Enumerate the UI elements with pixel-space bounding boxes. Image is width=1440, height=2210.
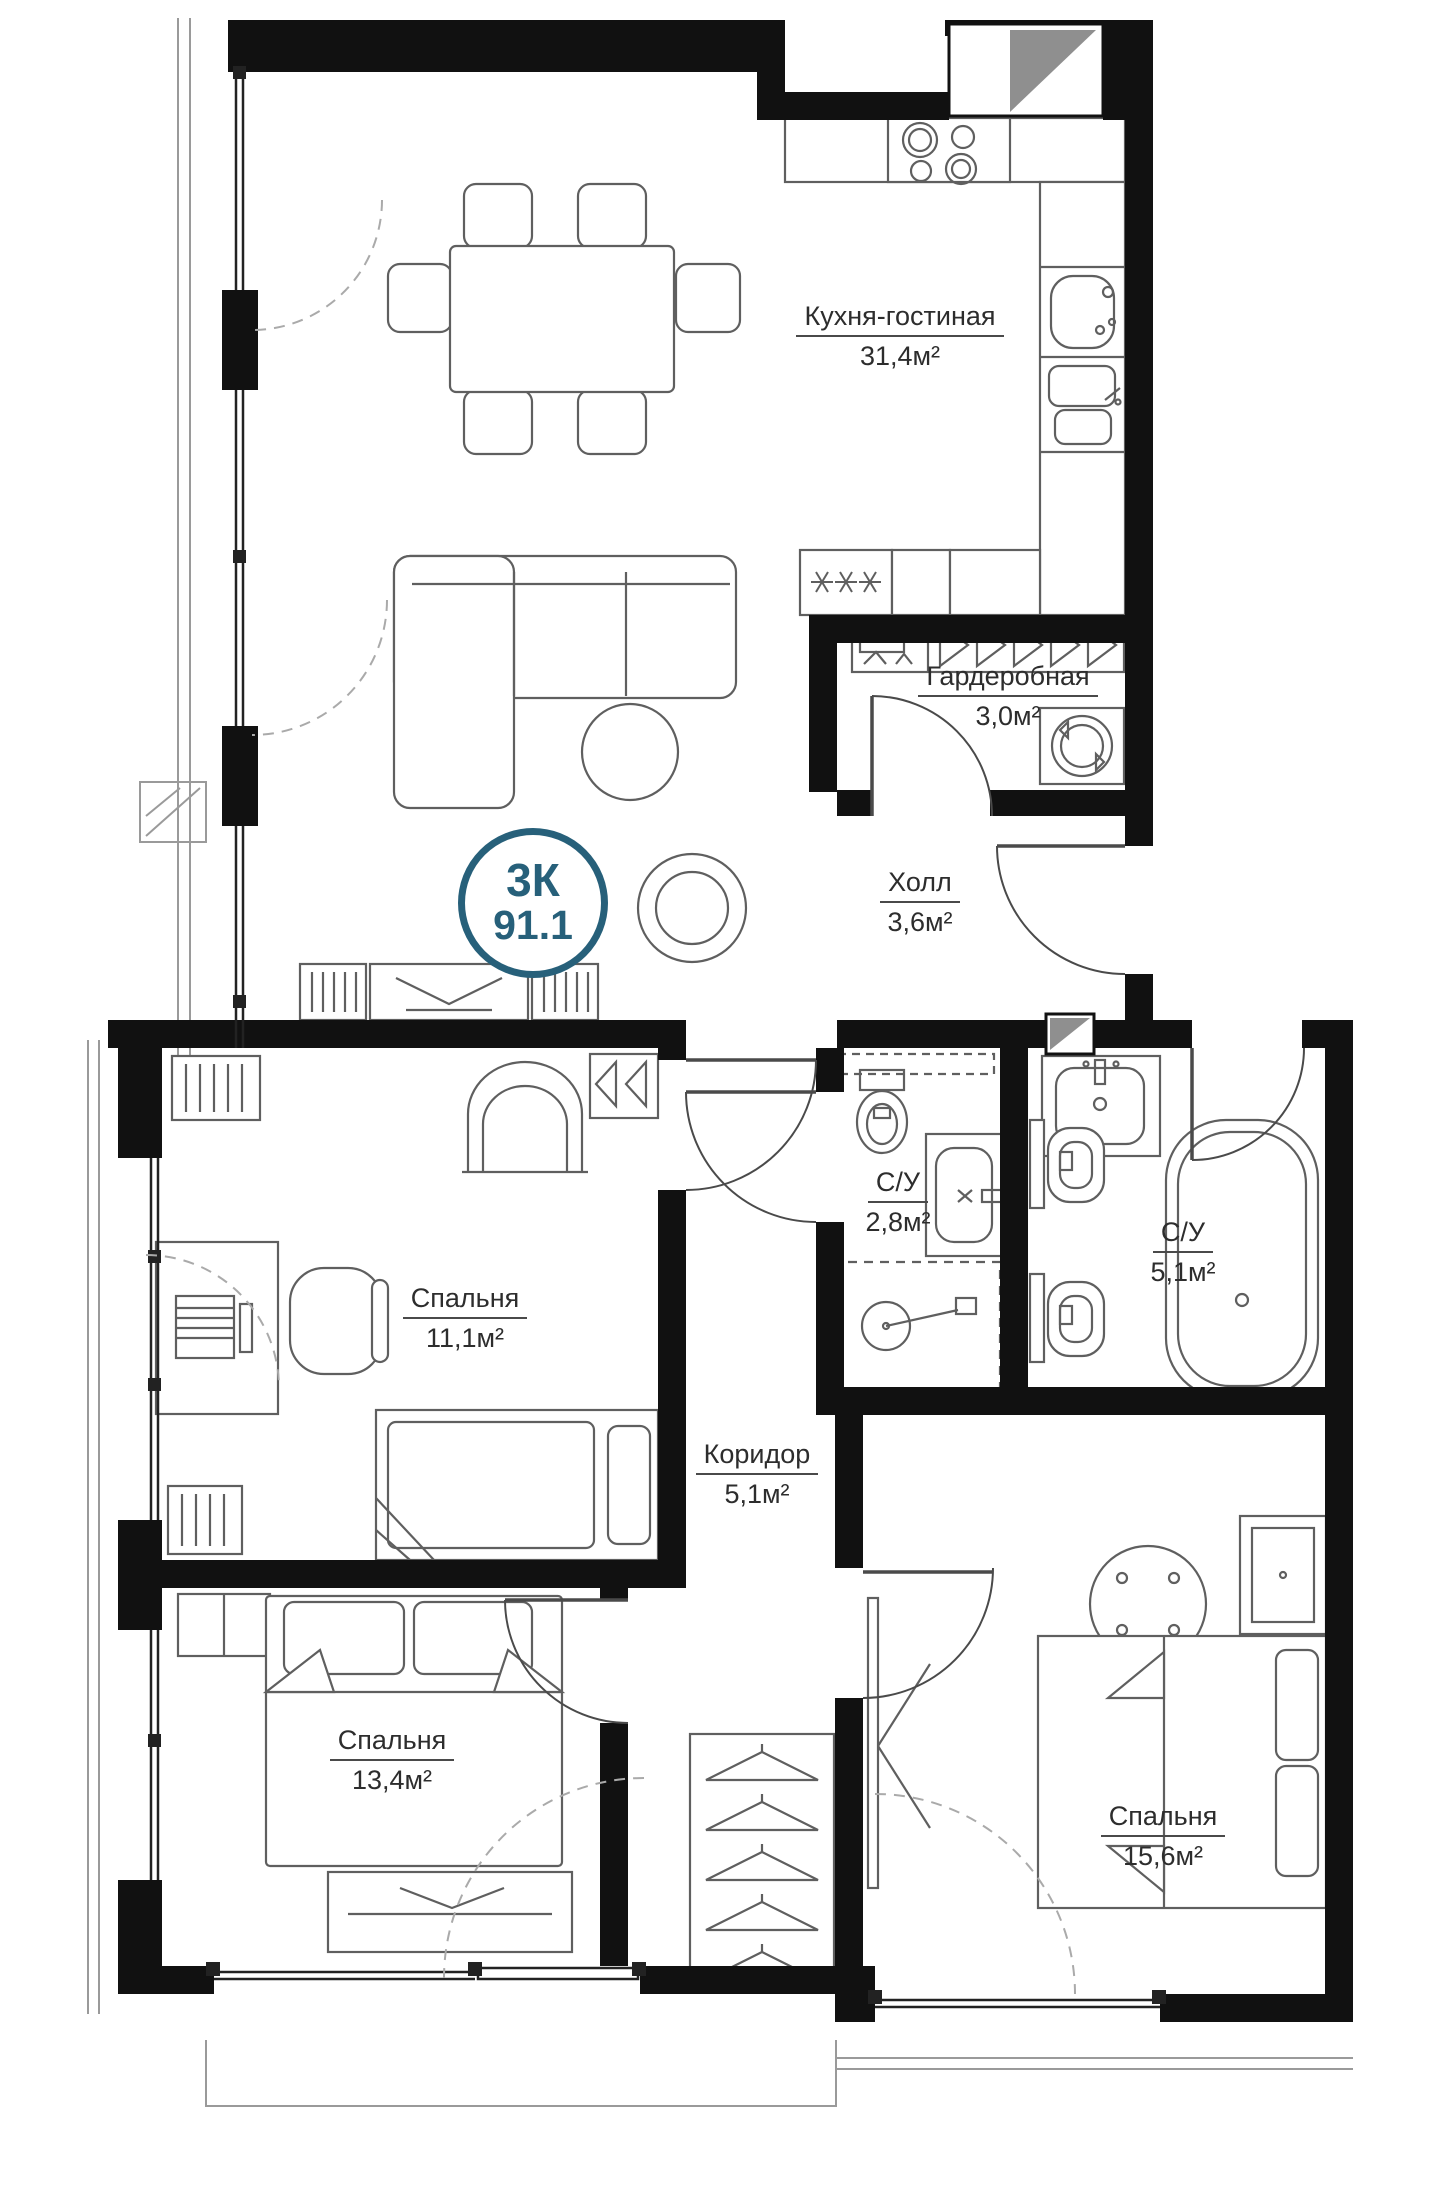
room-area: 13,4м² <box>252 1766 532 1794</box>
room-area: 3,0м² <box>868 702 1148 730</box>
room-name: Спальня <box>403 1284 528 1319</box>
room-label-bedroom-1: Спальня 11,1м² <box>325 1284 605 1353</box>
room-label-bathroom-guest: С/У 2,8м² <box>758 1168 1038 1237</box>
sofa <box>394 556 736 808</box>
floor-plan: Кухня-гостиная 31,4м² Гардеробная 3,0м² … <box>0 0 1440 2210</box>
room-area: 15,6м² <box>1023 1842 1303 1870</box>
apartment-type-label: 3К <box>506 857 560 903</box>
lounge-chair <box>638 854 746 962</box>
room-label-bathroom-master: С/У 5,1м² <box>1043 1218 1323 1287</box>
room-name: Кухня-гостиная <box>796 302 1003 337</box>
room-area: 11,1м² <box>325 1324 605 1352</box>
room-name: Холл <box>880 868 960 903</box>
room-name: Спальня <box>1101 1802 1226 1837</box>
vent-shaft-middle <box>1046 1014 1094 1054</box>
room-name: Коридор <box>696 1440 819 1475</box>
room-area: 3,6м² <box>780 908 1060 936</box>
room-label-wardrobe: Гардеробная 3,0м² <box>868 662 1148 731</box>
floor-plan-drawing <box>0 0 1440 2210</box>
plan-badge: 3К 91.1 <box>458 828 608 978</box>
room-area: 2,8м² <box>758 1208 1038 1236</box>
room-label-bedroom-3: Спальня 15,6м² <box>1023 1802 1303 1871</box>
room-label-kitchen-living: Кухня-гостиная 31,4м² <box>760 302 1040 371</box>
vent-shaft-top <box>949 24 1103 116</box>
room-name: С/У <box>868 1168 928 1203</box>
apartment-total-area: 91.1 <box>493 903 573 948</box>
room-area: 5,1м² <box>1043 1258 1323 1286</box>
room-label-corridor: Коридор 5,1м² <box>617 1440 897 1509</box>
kitchen-appliance-row <box>800 550 1040 615</box>
room-label-hall: Холл 3,6м² <box>780 868 1060 937</box>
coffee-table <box>582 704 678 800</box>
corridor-closet-hangers <box>690 1734 834 1988</box>
room-name: Спальня <box>330 1726 455 1761</box>
room-area: 5,1м² <box>617 1480 897 1508</box>
room-area: 31,4м² <box>760 342 1040 370</box>
room-name: С/У <box>1153 1218 1213 1253</box>
room-label-bedroom-2: Спальня 13,4м² <box>252 1726 532 1795</box>
dining-table-and-chairs <box>388 184 740 454</box>
room-name: Гардеробная <box>918 662 1097 697</box>
